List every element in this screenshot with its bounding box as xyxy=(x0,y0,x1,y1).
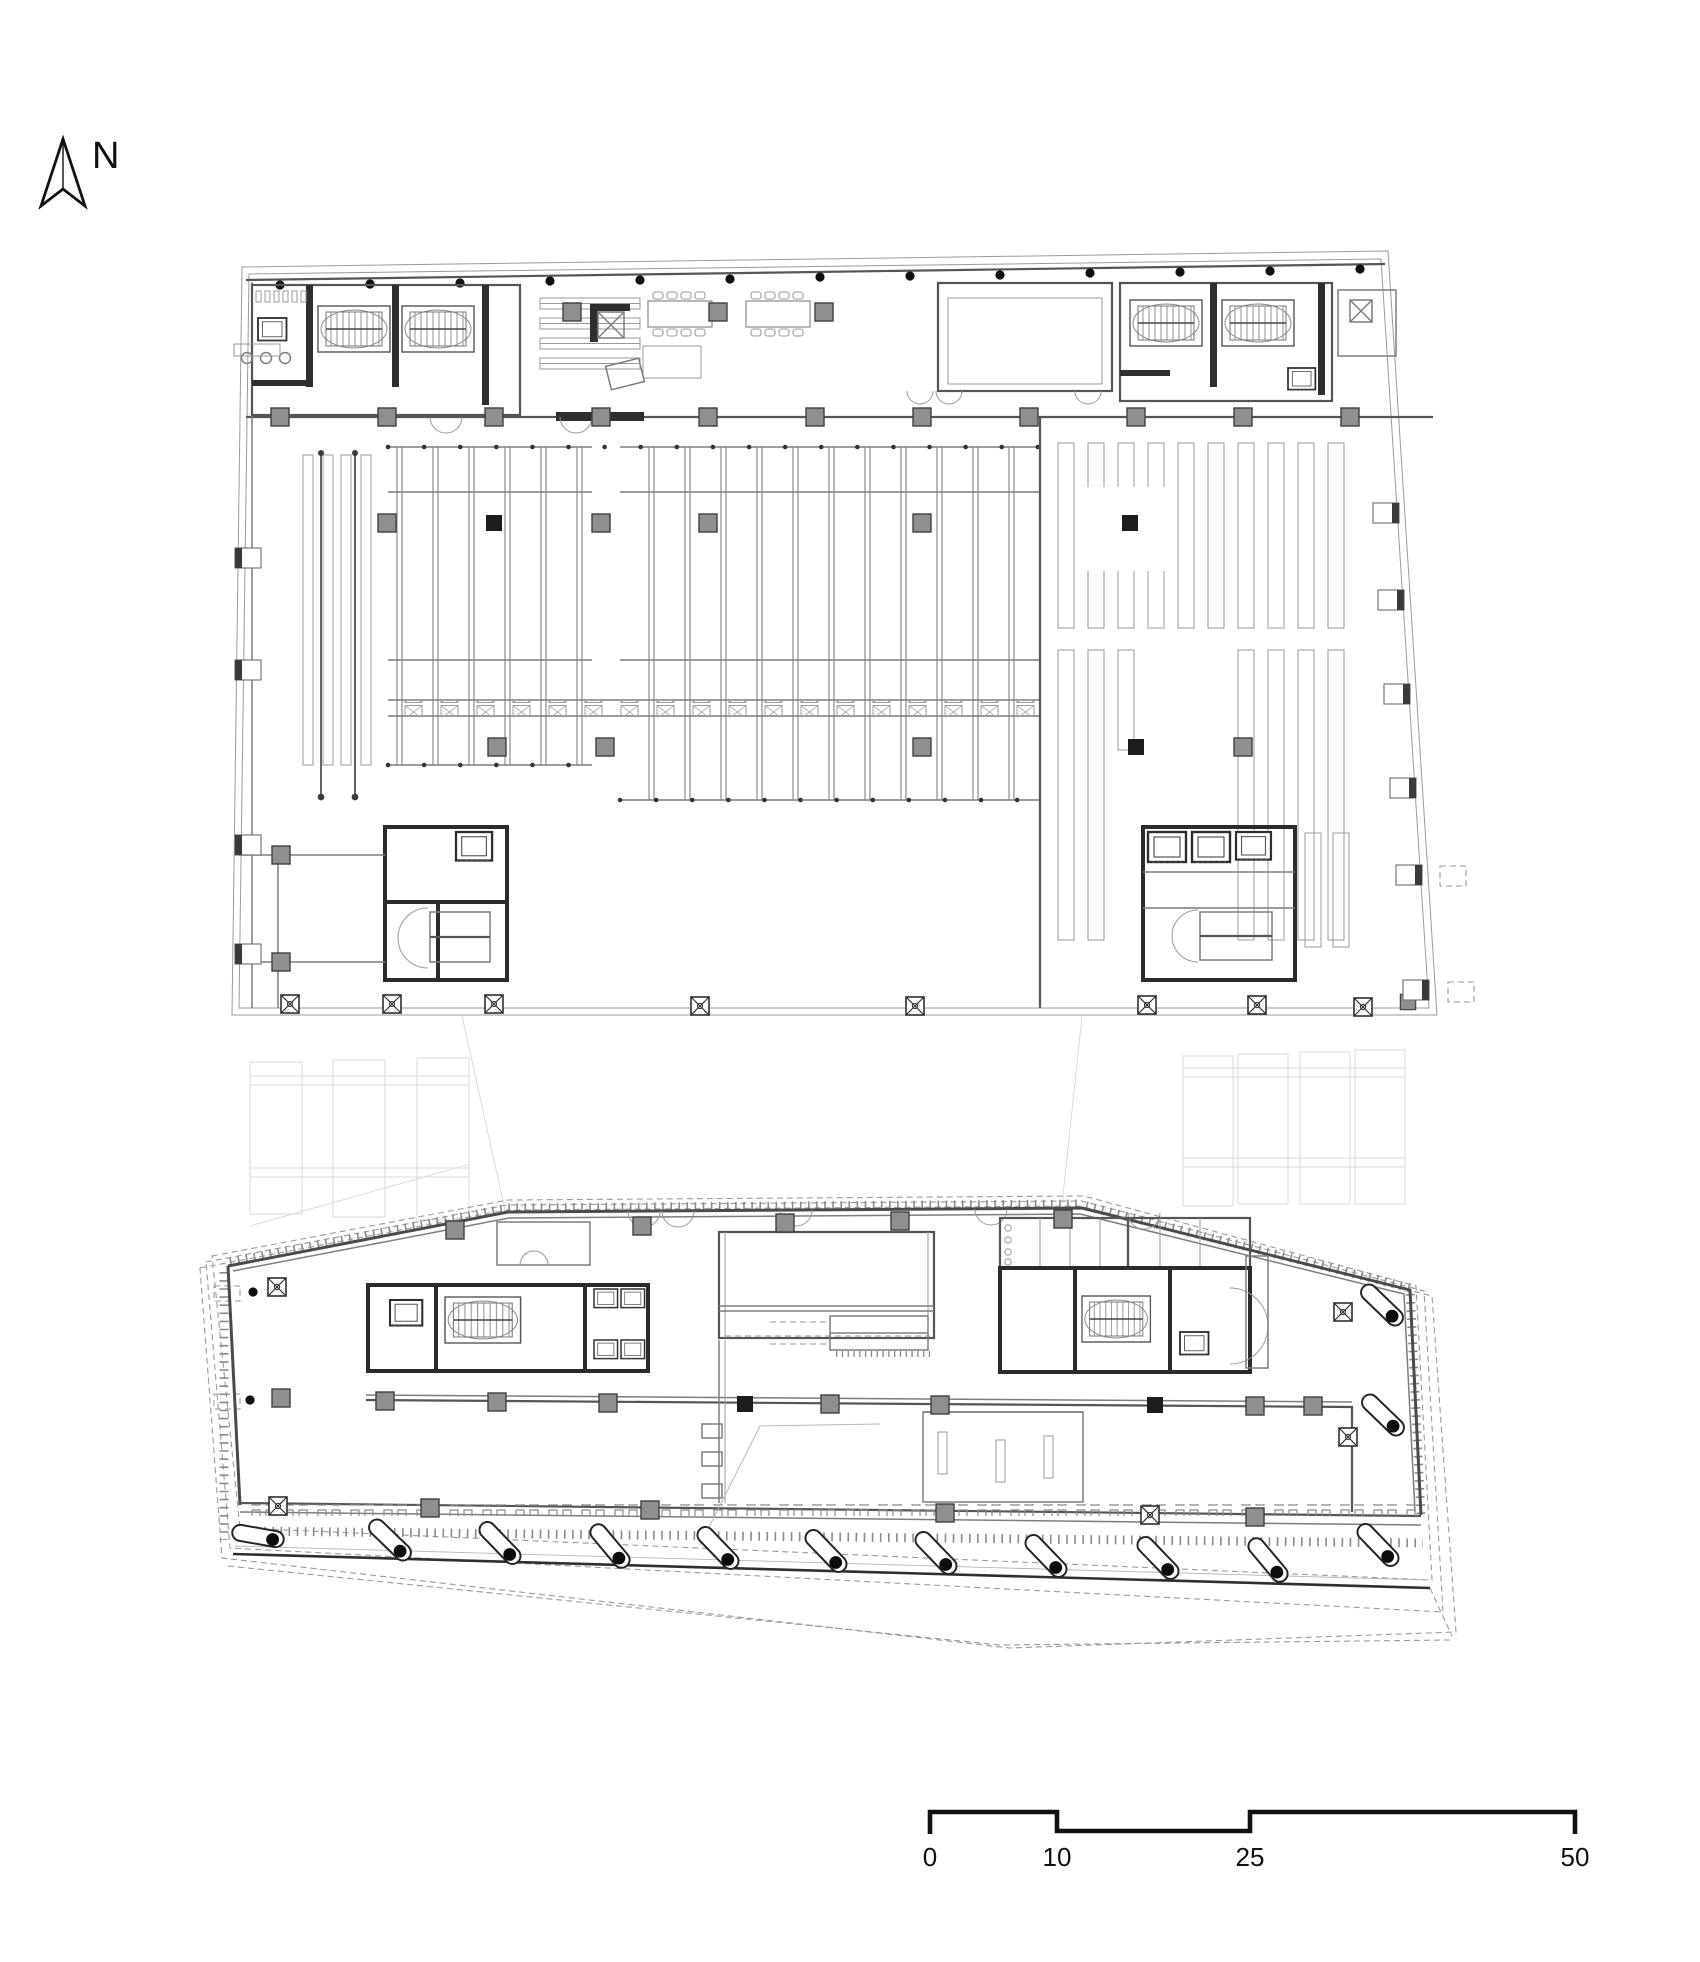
window-wall-mullions xyxy=(242,1504,1420,1516)
elevator-icon xyxy=(390,1300,422,1326)
elevator-icon xyxy=(594,1289,618,1308)
stair-icon xyxy=(445,1297,521,1343)
plan-sheet: N xyxy=(0,0,1700,1962)
stair-icon xyxy=(1130,300,1202,346)
lower-core-left xyxy=(368,1222,648,1371)
elevator-icon xyxy=(1148,832,1186,862)
wc-fixtures xyxy=(256,291,306,302)
scale-bar: 0 10 25 50 xyxy=(923,1812,1590,1872)
ghost-escalators xyxy=(250,1016,1405,1226)
meeting-table xyxy=(746,292,810,336)
stair-icon xyxy=(1082,1296,1150,1342)
meeting-area xyxy=(540,292,833,390)
elevator-icon xyxy=(1180,1332,1209,1355)
stair-icon xyxy=(402,306,474,352)
elevator-icon xyxy=(258,318,287,341)
scale-bar-line xyxy=(930,1812,1575,1834)
upper-core-bottom-left xyxy=(239,827,507,1008)
north-label: N xyxy=(92,135,119,177)
elevator-icon xyxy=(594,1340,618,1359)
stair-icon xyxy=(1222,300,1294,346)
terrace-benches xyxy=(231,1281,1407,1585)
scale-tick-25: 25 xyxy=(1236,1842,1265,1872)
lower-floor-plan xyxy=(200,1196,1456,1648)
meeting-table xyxy=(648,292,712,336)
scale-tick-50: 50 xyxy=(1561,1842,1590,1872)
elevator-icon xyxy=(621,1340,645,1359)
escalator-opening xyxy=(719,1232,934,1354)
upper-core-top-right xyxy=(1120,283,1396,401)
elevator-icon xyxy=(456,832,492,861)
striped-room xyxy=(907,283,1112,404)
scale-tick-0: 0 xyxy=(923,1842,937,1872)
elevator-icon xyxy=(621,1289,645,1308)
scale-tick-10: 10 xyxy=(1043,1842,1072,1872)
floor-plan-drawing: N xyxy=(0,0,1700,1962)
elevator-icon xyxy=(1192,832,1230,862)
upper-core-top-left xyxy=(234,285,520,415)
upper-floor-plan xyxy=(232,251,1474,1016)
north-arrow: N xyxy=(41,135,119,206)
shelving-grids xyxy=(388,418,1040,1008)
stair-icon xyxy=(318,306,390,352)
whiteboard xyxy=(606,358,645,390)
elevator-icon xyxy=(1236,832,1271,860)
upper-core-bottom-right xyxy=(1143,827,1349,980)
lower-columns xyxy=(245,1210,1357,1526)
compact-shelving xyxy=(303,450,371,800)
elevator-icon xyxy=(1288,368,1315,390)
archive-stacks xyxy=(1058,443,1344,940)
